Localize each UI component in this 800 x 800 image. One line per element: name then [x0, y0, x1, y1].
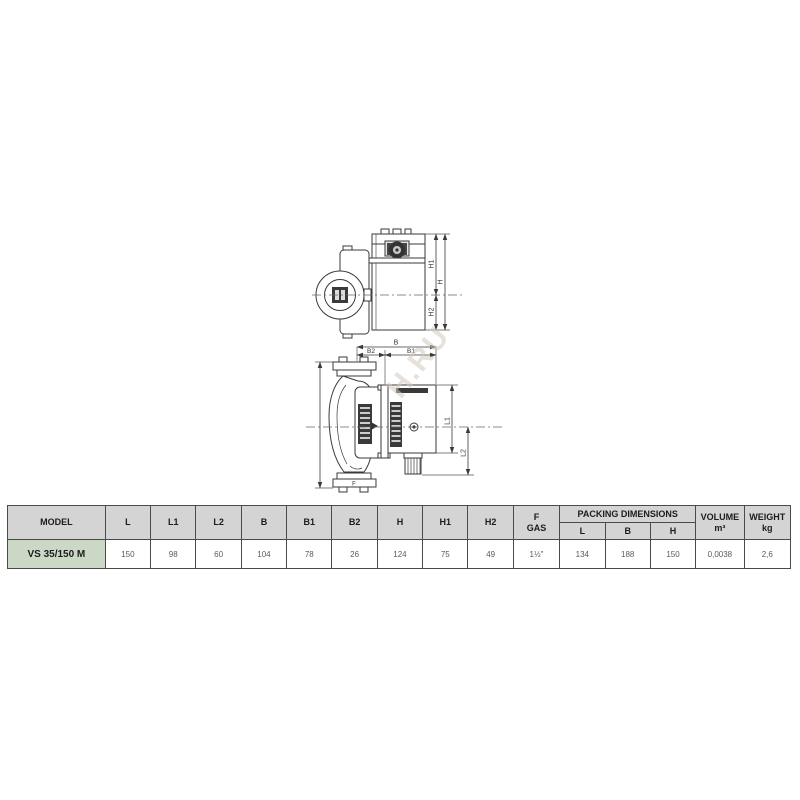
model-value: VS 35/150 M [8, 540, 106, 569]
value-b1: 78 [287, 540, 332, 569]
table-row: VS 35/150 M 150 98 60 104 78 26 124 75 4… [8, 540, 791, 569]
value-l: 150 [105, 540, 150, 569]
header-volume-line2: m³ [696, 523, 743, 534]
header-b2: B2 [332, 506, 377, 540]
header-volume: VOLUME m³ [696, 506, 744, 540]
header-volume-line1: VOLUME [696, 512, 743, 523]
value-h1: 75 [423, 540, 468, 569]
value-f-gas: 1½" [513, 540, 559, 569]
header-packing-l: L [560, 523, 605, 540]
connector-bump [393, 229, 401, 234]
value-h2: 49 [468, 540, 513, 569]
dim-label-l1: L1 [445, 417, 452, 425]
dim-label-b: B [394, 340, 399, 347]
dim-label-f: F [352, 482, 356, 488]
value-weight: 2,6 [744, 540, 790, 569]
header-weight: WEIGHT kg [744, 506, 790, 540]
header-f-gas-line1: F [514, 512, 559, 523]
header-weight-line1: WEIGHT [745, 512, 790, 523]
connector-bump [405, 229, 411, 234]
header-h1: H1 [423, 506, 468, 540]
dim-label-l2: L2 [461, 449, 468, 457]
value-packing-h: 150 [650, 540, 695, 569]
top-flange [333, 362, 376, 370]
header-b1: B1 [287, 506, 332, 540]
value-packing-l: 134 [560, 540, 605, 569]
value-l2: 60 [196, 540, 241, 569]
value-l1: 98 [151, 540, 196, 569]
header-l: L [105, 506, 150, 540]
value-b2: 26 [332, 540, 377, 569]
header-f-gas: F GAS [513, 506, 559, 540]
header-b: B [241, 506, 286, 540]
dim-label-b2: B2 [367, 348, 375, 355]
specs-table: MODEL L L1 L2 B B1 B2 H H1 H2 F GAS PACK… [7, 505, 791, 569]
header-f-gas-line2: GAS [514, 523, 559, 534]
header-packing-h: H [650, 523, 695, 540]
dim-label-h: H [438, 279, 445, 284]
pump-dimension-drawing: H1 H2 H [300, 215, 515, 510]
dim-label-h1: H1 [429, 259, 436, 268]
clamp-ring [381, 385, 388, 458]
value-b: 104 [241, 540, 286, 569]
header-l1: L1 [151, 506, 196, 540]
connector-bump [381, 229, 389, 234]
union-nut [404, 453, 422, 458]
datasheet-page: H1 H2 H [0, 0, 800, 800]
header-packing-b: B [605, 523, 650, 540]
header-h2: H2 [468, 506, 513, 540]
header-packing-dimensions: PACKING DIMENSIONS [560, 506, 696, 523]
header-model: MODEL [8, 506, 106, 540]
dim-label-h2: H2 [429, 307, 436, 316]
header-l2: L2 [196, 506, 241, 540]
value-volume: 0,0038 [696, 540, 744, 569]
header-h: H [377, 506, 422, 540]
header-weight-line2: kg [745, 523, 790, 534]
value-h: 124 [377, 540, 422, 569]
value-packing-b: 188 [605, 540, 650, 569]
